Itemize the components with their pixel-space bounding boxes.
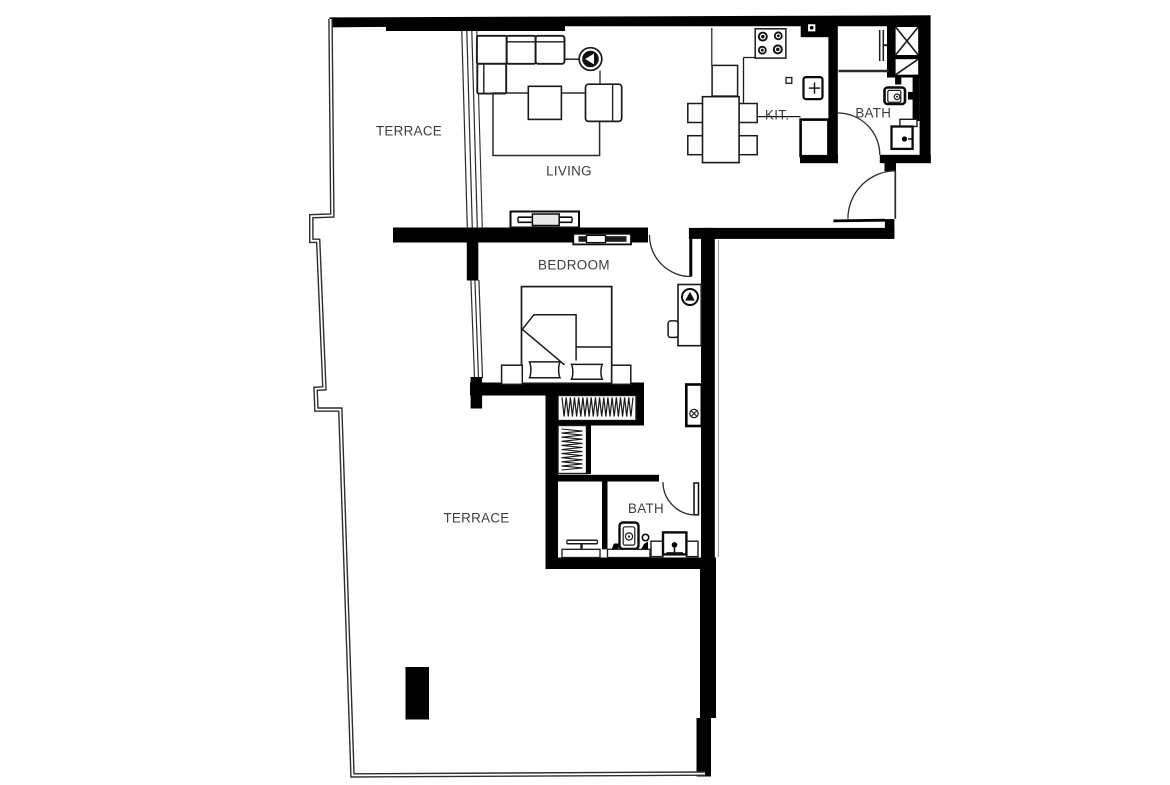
svg-text:BATH: BATH bbox=[855, 105, 891, 120]
svg-text:TERRACE: TERRACE bbox=[376, 124, 442, 139]
svg-text:BATH: BATH bbox=[628, 501, 664, 516]
svg-text:BEDROOM: BEDROOM bbox=[538, 258, 610, 273]
svg-text:LIVING: LIVING bbox=[546, 164, 592, 179]
svg-text:TERRACE: TERRACE bbox=[443, 510, 509, 525]
svg-text:KIT.: KIT. bbox=[765, 107, 790, 122]
